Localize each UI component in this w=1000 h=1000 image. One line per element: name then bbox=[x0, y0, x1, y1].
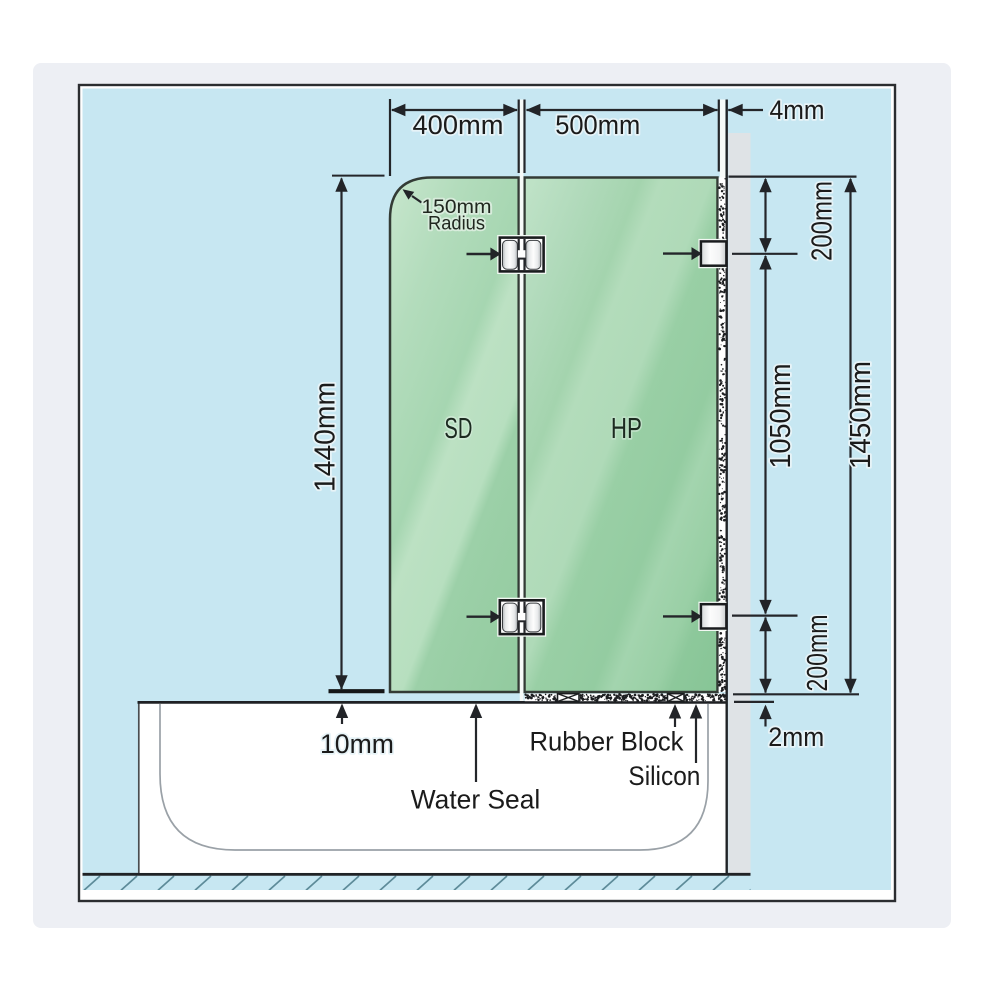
svg-text:Rubber Block: Rubber Block bbox=[530, 727, 685, 757]
svg-text:400mm: 400mm bbox=[413, 110, 504, 140]
svg-text:HP: HP bbox=[611, 413, 642, 445]
svg-text:Radius: Radius bbox=[428, 214, 485, 235]
svg-text:1050mm: 1050mm bbox=[765, 364, 797, 469]
svg-text:500mm: 500mm bbox=[555, 110, 640, 140]
svg-text:2mm: 2mm bbox=[768, 722, 824, 752]
svg-text:1450mm: 1450mm bbox=[845, 361, 877, 469]
svg-text:10mm: 10mm bbox=[320, 729, 394, 759]
svg-text:1440mm: 1440mm bbox=[309, 382, 341, 492]
svg-text:Water Seal: Water Seal bbox=[411, 785, 541, 815]
svg-text:Silicon: Silicon bbox=[628, 761, 700, 791]
svg-text:SD: SD bbox=[444, 413, 472, 445]
svg-text:4mm: 4mm bbox=[770, 95, 825, 125]
svg-text:200mm: 200mm bbox=[802, 615, 834, 692]
svg-text:200mm: 200mm bbox=[806, 181, 838, 261]
